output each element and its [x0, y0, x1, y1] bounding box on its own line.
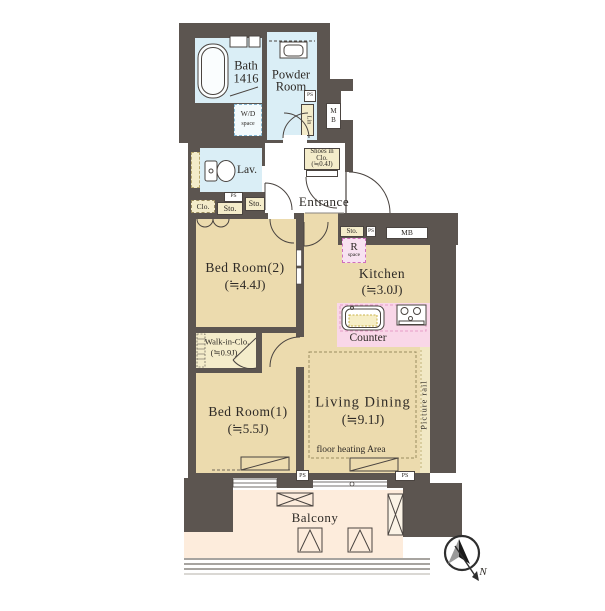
picture-rail-label: Picture rail — [420, 380, 429, 430]
living-dining-size-label: (≒9.1J) — [342, 413, 384, 427]
balcony-floor-left — [184, 532, 233, 558]
counter-label: Counter — [349, 332, 386, 344]
linen-label: Lin — [304, 115, 311, 124]
bath-size-label: 1416 — [234, 72, 259, 85]
ps-south-right-box: PS — [395, 471, 415, 481]
ps-hall-box: PS — [224, 192, 243, 202]
bed1-doorway — [296, 337, 304, 367]
sto-hall-right-box: Sto. — [245, 197, 265, 211]
clo-box: Clo. — [191, 200, 215, 213]
shoes-closet-door — [306, 170, 338, 177]
wall-segment — [430, 245, 456, 473]
balcony-label: Balcony — [292, 511, 339, 525]
kitchen-size-label: (≒3.0J) — [362, 283, 403, 297]
sto-kitchen-box: Sto. — [340, 226, 364, 237]
shoes-closet-box: Shoes in Clo. (≒0.4J) — [304, 148, 340, 170]
lav-doorway — [262, 166, 266, 192]
mb-shaft-box: M B — [326, 103, 341, 129]
living-dining-label: Living Dining — [315, 395, 411, 410]
wall-segment — [188, 137, 196, 479]
ps-kitchen-box: PS — [366, 226, 376, 237]
wall-segment — [403, 483, 462, 537]
mb-kitchen-box: MB — [386, 227, 428, 239]
floor-plan: PS M B Shoes in Clo. (≒0.4J) Clo. PS Sto… — [0, 0, 605, 611]
bed1-size-label: (≒5.5J) — [228, 422, 269, 436]
ps-south-left-box: PS — [296, 470, 309, 481]
wd-space-label: W/D — [241, 110, 256, 118]
entrance-door-arc — [349, 172, 390, 213]
rspace-word: space — [348, 253, 360, 259]
bed2-size-label: (≒4.4J) — [225, 278, 266, 292]
wall-segment — [296, 213, 304, 337]
bed2-label: Bed Room(2) — [205, 261, 284, 275]
corridor-floor — [304, 213, 338, 245]
floor-heating-label: floor heating Area — [316, 446, 385, 456]
shoes-closet-line3: (≒0.4J) — [311, 162, 332, 169]
wd-space-label2: space — [241, 121, 254, 127]
wall-segment — [184, 478, 233, 532]
balcony-railing-lines — [184, 559, 430, 569]
lav-label: Lav. — [237, 164, 257, 176]
wic-size-label: (≒0.9J) — [211, 349, 238, 358]
wall-segment — [296, 367, 304, 473]
compass-arrowhead — [472, 571, 479, 581]
compass-north-line — [455, 546, 478, 580]
kitchen-label: Kitchen — [359, 267, 405, 281]
bed1-label: Bed Room(1) — [208, 405, 287, 419]
mb-shaft-letter-b: B — [331, 117, 336, 124]
bed2-doorway — [268, 211, 294, 219]
compass-needle-light — [448, 539, 459, 564]
refrigerator-space-box: R space — [342, 238, 366, 263]
bed1-entry-floor — [262, 333, 296, 373]
compass-icon — [445, 536, 479, 570]
compass-needle-dark — [459, 539, 470, 564]
entrance-label: Entrance — [299, 195, 349, 209]
powder-doorway — [283, 135, 307, 148]
bed1-window — [233, 478, 277, 488]
lav-shelf — [191, 152, 200, 188]
powder-room-label2: Room — [276, 80, 307, 93]
living-sliding-window — [313, 480, 387, 488]
sto-hall-left-box: Sto. — [217, 202, 243, 215]
wic-label: Walk-in-Clo. — [205, 338, 249, 347]
wall-niche — [341, 91, 353, 120]
mb-shaft-letter-m: M — [330, 108, 336, 115]
compass-north-label: N — [479, 567, 486, 579]
